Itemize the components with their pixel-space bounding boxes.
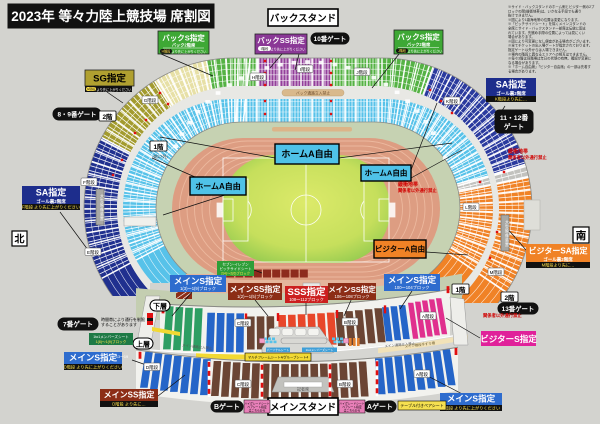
svg-text:1to1メンバーズシート: 1to1メンバーズシート (93, 334, 129, 339)
svg-text:関係者以外通行禁止: 関係者以外通行禁止 (508, 154, 547, 161)
svg-text:ホームA自由: ホームA自由 (365, 168, 408, 178)
svg-text:バックS指定: バックS指定 (397, 32, 440, 42)
svg-text:ロックの間(緩衝地帯)は、いかなる手段でも通り: ロックの間(緩衝地帯)は、いかなる手段でも通り (508, 8, 581, 13)
svg-text:バック2階席: バック2階席 (407, 41, 431, 48)
svg-text:関係者以外通行禁止: 関係者以外通行禁止 (398, 187, 437, 194)
svg-text:バックSS指定: バックSS指定 (257, 35, 305, 45)
svg-text:G階段: G階段 (144, 97, 157, 104)
svg-text:C階段: C階段 (237, 381, 250, 388)
svg-text:バック2階席: バック2階席 (172, 42, 196, 49)
svg-text:8・9番ゲート: 8・9番ゲート (57, 109, 96, 118)
svg-text:L階段: L階段 (465, 204, 477, 211)
svg-text:(前17列): (前17列) (152, 153, 168, 159)
svg-text:より先に上がりください: より先に上がりください (172, 49, 207, 54)
svg-text:C階段: C階段 (237, 320, 250, 327)
svg-text:することがあります: することがあります (101, 321, 137, 327)
svg-text:テーブル付きペアシート: テーブル付きペアシート (400, 402, 444, 408)
svg-text:E階段: E階段 (87, 249, 100, 256)
svg-text:M階段: M階段 (490, 269, 503, 276)
svg-text:る場合があります。: る場合があります。 (508, 69, 538, 74)
svg-text:れています。先銭め手際の位置によっては見にくい: れています。先銭め手際の位置によっては見にくい (508, 30, 586, 35)
svg-text:なる場合があります。: なる場合があります。 (508, 60, 542, 65)
svg-text:全席とサイド・バックスタンド一部席は伝統に固ま: 全席とサイド・バックスタンド一部席は伝統に固ま (508, 26, 586, 31)
svg-text:緩衝地帯: 緩衝地帯 (508, 148, 528, 155)
svg-text:大型映像装置: 大型映像装置 (505, 219, 510, 248)
svg-text:メインスタンド: メインスタンド (270, 402, 336, 414)
svg-text:2023年 等々力陸上競技場 席割図: 2023年 等々力陸上競技場 席割図 (11, 8, 211, 24)
svg-text:ビジターA自由: ビジターA自由 (375, 244, 425, 254)
svg-text:I階段: I階段 (300, 66, 311, 73)
svg-text:メインS指定: メインS指定 (388, 275, 437, 285)
svg-text:K階段: K階段 (446, 98, 459, 105)
svg-text:13番ゲート: 13番ゲート (502, 304, 535, 313)
svg-text:※全てチケットの出入場ゲートが指定されております。: ※全てチケットの出入場ゲートが指定されております。 (508, 43, 592, 48)
svg-text:バックスタンド: バックスタンド (270, 13, 336, 25)
svg-text:K階段より先に…: K階段より先に… (495, 96, 527, 103)
svg-text:メインS指定: メインS指定 (174, 276, 223, 286)
svg-text:※図により1歳海地帯の位置は変更になります。: ※図により1歳海地帯の位置は変更になります。 (508, 17, 581, 22)
svg-text:108〜112ブロック: 108〜112ブロック (289, 296, 324, 303)
svg-text:メインSS指定: メインSS指定 (328, 284, 376, 294)
svg-text:2(4)〜2(6)ブロック: 2(4)〜2(6)ブロック (221, 271, 250, 276)
svg-text:D階段: D階段 (146, 364, 159, 371)
svg-text:2階: 2階 (504, 293, 515, 302)
svg-text:メインSS指定: メインSS指定 (104, 390, 155, 400)
svg-text:指定ゲート以外からは入場できません。: 指定ゲート以外からは入場できません。 (508, 47, 569, 52)
svg-text:1(3)〜1(9)ブロック: 1(3)〜1(9)ブロック (180, 285, 216, 292)
svg-text:緩衝地帯: 緩衝地帯 (398, 181, 418, 188)
svg-text:D階段 より先に上がりください: D階段 より先に上がりください (64, 364, 123, 371)
svg-text:上層: 上層 (136, 340, 150, 349)
svg-text:はこちらから: はこちらから (344, 409, 361, 413)
svg-text:ホームA自由: ホームA自由 (195, 181, 241, 191)
svg-text:1(8)〜1(9)ブロック: 1(8)〜1(9)ブロック (96, 339, 127, 344)
svg-text:※サイド・バックスタンドのホーム側とビジター側の2ブ: ※サイド・バックスタンドのホーム側とビジター側の2ブ (508, 4, 595, 9)
svg-text:G階段: G階段 (87, 86, 95, 91)
svg-text:Bゲート: Bゲート (214, 402, 240, 411)
svg-text:A階段 より先に上がりください: A階段 より先に上がりください (442, 405, 500, 412)
svg-text:南: 南 (576, 229, 587, 242)
svg-text:より先に上がりください: より先に上がりください (97, 87, 132, 92)
svg-text:1(2)〜1(5)ブロック: 1(2)〜1(5)ブロック (237, 293, 273, 300)
svg-text:B階段: B階段 (344, 319, 357, 326)
svg-text:メインS指定: メインS指定 (69, 353, 118, 363)
svg-text:ビジターS指定: ビジターS指定 (480, 334, 537, 344)
svg-text:A階段: A階段 (416, 371, 429, 378)
svg-text:場合があります。: 場合があります。 (508, 34, 535, 39)
svg-text:※「ピッチサイドシート」を除くメインスタンドの: ※「ピッチサイドシート」を除くメインスタンドの (508, 21, 587, 26)
svg-text:パーソナルシート: パーソナルシート (267, 348, 290, 352)
svg-text:13〜19: 13〜19 (116, 355, 128, 359)
svg-text:はこちらから: はこちらから (249, 409, 266, 413)
svg-text:※毎々3階は同階場は年日の状態の有無、確認が変更に: ※毎々3階は同階場は年日の状態の有無、確認が変更に (508, 56, 592, 61)
svg-text:メインS指定: メインS指定 (447, 394, 496, 404)
svg-text:関係者以外通行禁止: 関係者以外通行禁止 (483, 312, 522, 319)
svg-text:セブン-イレブン: セブン-イレブン (222, 262, 249, 267)
svg-text:ビジターSA指定: ビジターSA指定 (529, 246, 588, 256)
svg-text:11・12番: 11・12番 (500, 113, 529, 122)
svg-text:D階段 より先に…: D階段 より先に… (112, 401, 145, 408)
svg-text:SA指定: SA指定 (36, 187, 68, 198)
svg-text:バックS指定: バックS指定 (162, 33, 205, 43)
svg-text:ピッチサイドシート: ピッチサイドシート (219, 266, 252, 271)
svg-text:100〜104ブロック: 100〜104ブロック (395, 284, 430, 291)
svg-text:メインSS指定: メインSS指定 (230, 284, 281, 294)
svg-text:7番ゲート: 7番ゲート (63, 319, 93, 328)
svg-text:H階段: H階段 (162, 49, 171, 54)
svg-text:Aゲート: Aゲート (367, 402, 393, 411)
svg-text:より先に上がりください: より先に上がりください (271, 46, 306, 51)
svg-text:大型映像装置: 大型映像装置 (100, 193, 105, 222)
svg-text:※場内の階段と異なるエリアへの相互はできません。: ※場内の階段と異なるエリアへの相互はできません。 (508, 51, 589, 56)
svg-text:記者席: 記者席 (297, 386, 309, 392)
svg-text:より先に上がりください: より先に上がりください (408, 48, 443, 53)
svg-text:※「ホーム自由席」「ビジター自由席」の一部は先着す: ※「ホーム自由席」「ビジター自由席」の一部は先着す (508, 64, 592, 69)
svg-text:※図により可変更になし便宜がある場合がございます。: ※図により可変更になし便宜がある場合がございます。 (508, 38, 592, 43)
svg-text:M階段より先に…: M階段より先に… (542, 262, 575, 269)
svg-text:バック通路立入禁止: バック通路立入禁止 (296, 91, 330, 96)
svg-text:ホームA自由: ホームA自由 (281, 148, 332, 159)
svg-text:1階: 1階 (153, 142, 164, 151)
svg-text:1to1メンバーズシート: 1to1メンバーズシート (306, 348, 334, 352)
svg-text:106〜108ブロック: 106〜108ブロック (335, 293, 370, 300)
svg-text:F階段 より先に上がりください: F階段 より先に上がりください (22, 204, 80, 211)
svg-text:北: 北 (15, 233, 25, 246)
svg-text:10番ゲート: 10番ゲート (314, 34, 347, 43)
svg-text:I階段: I階段 (261, 46, 269, 51)
svg-text:マルチフレームシート4/グループシート4: マルチフレームシート4/グループシート4 (248, 355, 308, 360)
svg-text:ゲート: ゲート (504, 122, 524, 131)
svg-text:抜けできません。: 抜けできません。 (508, 13, 535, 18)
svg-text:J階段: J階段 (356, 69, 368, 76)
svg-text:SA指定: SA指定 (496, 79, 528, 90)
svg-text:F階段: F階段 (83, 179, 95, 186)
svg-text:H階段: H階段 (252, 74, 265, 81)
svg-text:B階段: B階段 (339, 381, 352, 388)
svg-text:下層: 下層 (153, 302, 167, 311)
svg-text:2階: 2階 (102, 112, 113, 121)
svg-text:A階段: A階段 (422, 313, 435, 320)
svg-text:1階: 1階 (455, 285, 466, 294)
svg-text:SG指定: SG指定 (93, 73, 126, 85)
svg-text:J階段: J階段 (398, 48, 407, 53)
